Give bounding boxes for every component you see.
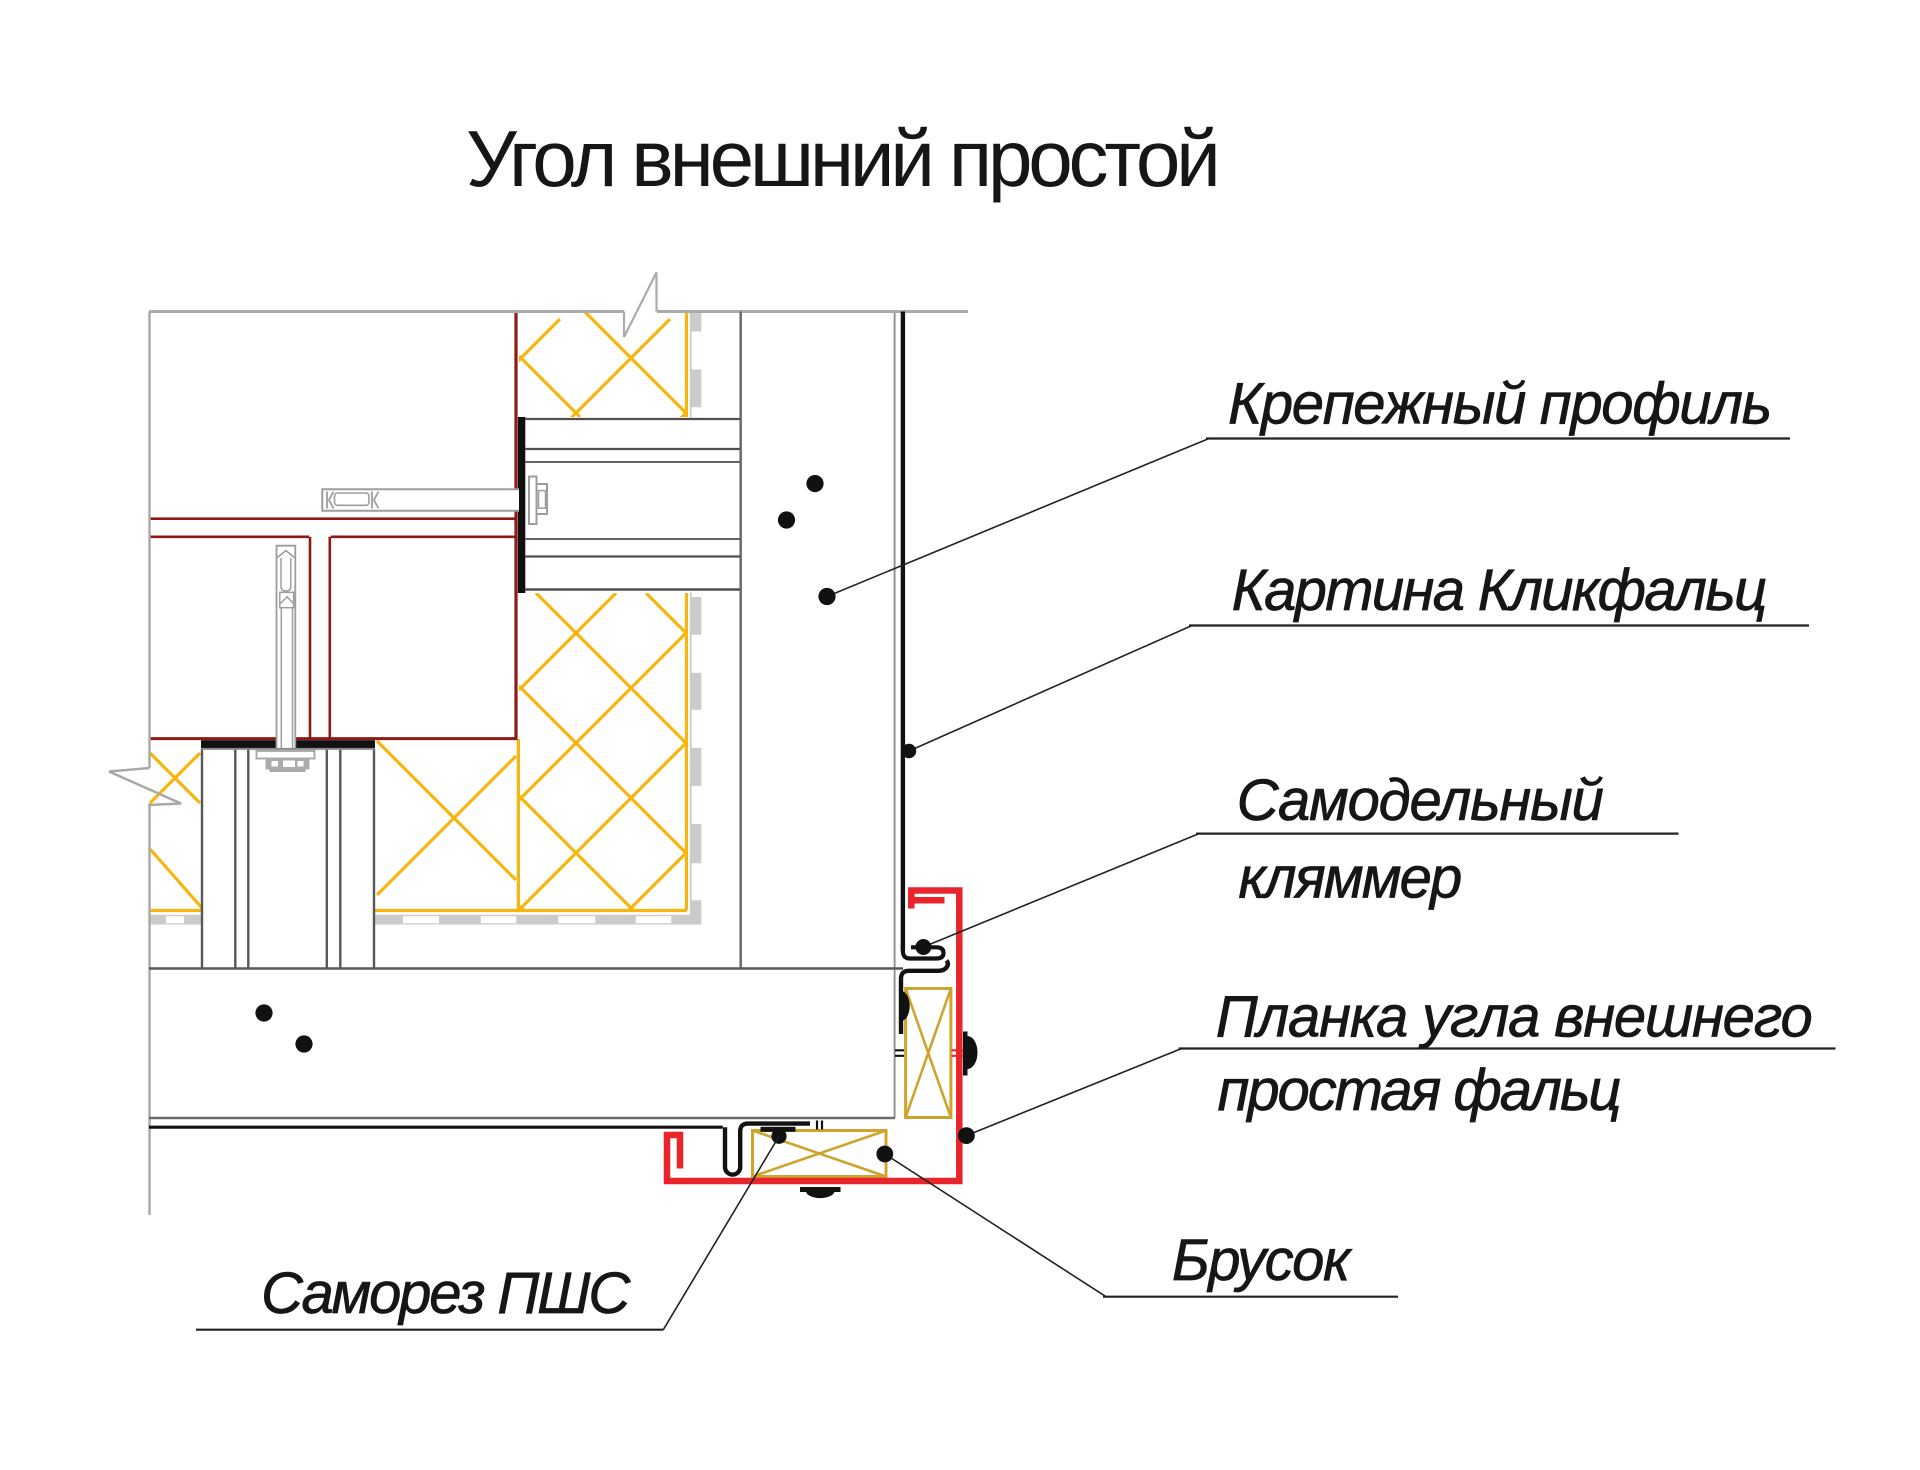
svg-text:Планка угла внешнего: Планка угла внешнего [1216, 985, 1812, 1050]
svg-text:кляммер: кляммер [1238, 846, 1461, 911]
svg-text:Саморез ПШС: Саморез ПШС [261, 1261, 631, 1326]
svg-text:Крепежный профиль: Крепежный профиль [1228, 372, 1771, 437]
svg-text:простая фальц: простая фальц [1218, 1058, 1621, 1123]
svg-text:Самодельный: Самодельный [1237, 768, 1604, 833]
svg-text:Брусок: Брусок [1172, 1228, 1353, 1293]
svg-text:Угол внешний простой: Угол внешний простой [466, 114, 1217, 203]
svg-text:Картина Кликфальц: Картина Кликфальц [1232, 558, 1766, 623]
